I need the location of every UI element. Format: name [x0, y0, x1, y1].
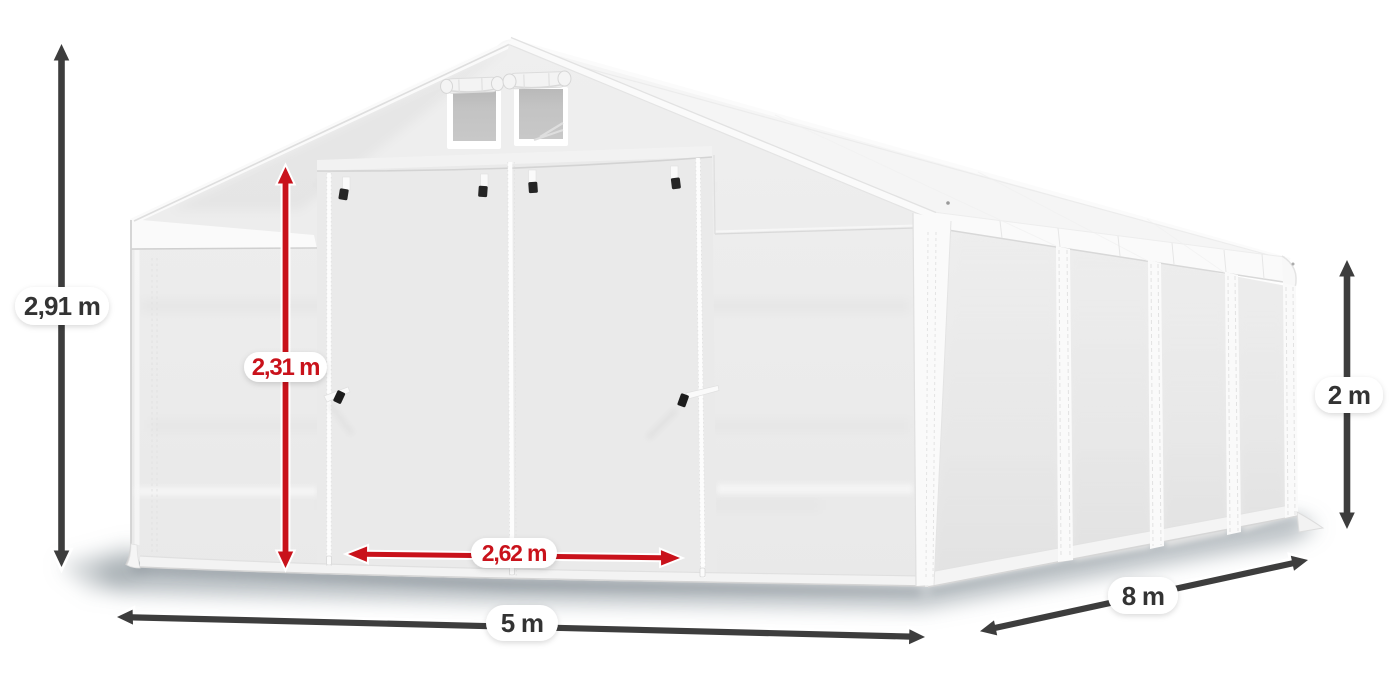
svg-text:2 m: 2 m: [1328, 380, 1370, 410]
svg-text:2,31 m: 2,31 m: [252, 354, 320, 381]
svg-text:2,91 m: 2,91 m: [24, 291, 100, 321]
svg-text:8 m: 8 m: [1122, 581, 1164, 611]
svg-text:5 m: 5 m: [501, 608, 543, 638]
svg-text:2,62 m: 2,62 m: [482, 540, 547, 566]
